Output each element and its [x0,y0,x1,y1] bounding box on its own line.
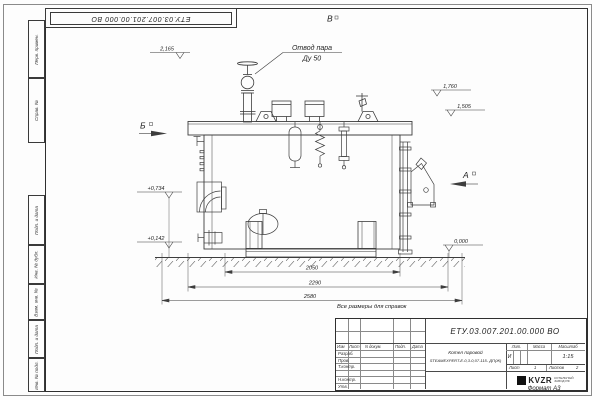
product-name-cell: Котел паровой STEAMEXPERT-E-0,3-0,07-115… [425,343,506,371]
row-razrab: Разраб. [338,351,354,356]
engineering-drawing-sheet: { "page": { "top_stamp": "ЕТУ.03.007.201… [0,0,600,400]
col-list: Лист [349,344,360,349]
divider [336,357,425,358]
elevation-marks: 2,165 1,760 1,505 +0,734 +0,142 0,000 [137,47,485,258]
row-tkontr: Т.контр. [338,364,355,369]
scale-value: 1:15 [551,350,585,364]
kvzr-logo-icon [517,376,526,385]
divider [410,319,411,389]
list-value: 1 [534,365,536,370]
col-podp: Подп. [395,344,406,349]
row-utv: Утв. [338,384,348,389]
steam-outlet-stack [238,62,258,122]
dim-2050: 2050 [305,266,319,272]
divider [393,319,394,389]
elevation-0142: +0,142 [148,236,165,242]
masshtab-label: Масштаб [551,343,585,350]
callout-du50: Ду 50 [302,56,321,63]
top-hatch-boxes [272,101,324,122]
kvzr-sub2: ЗАВОД РФ [554,380,573,383]
supports-skid [246,222,376,258]
dim-2290: 2290 [308,281,322,287]
elevation-0000: 0,000 [454,239,469,245]
row-nkontr: Н.контр. [338,377,356,382]
kvzr-logo-text: KVZR [528,376,552,385]
view-labels: В Б А [139,14,478,187]
lifting-lugs [256,93,378,122]
row-prov: Пров. [338,358,349,363]
product-name: Котел паровой [448,350,482,357]
title-block: ЕТУ.03.007.201.00.000 ВО Котел паровой S… [335,318,587,391]
kvzr-logo-subtext: КОТЕЛЬНЫЙ ЗАВОД РФ [554,377,573,384]
divider [513,350,514,364]
front-fittings [194,137,279,246]
dim-2580: 2580 [303,294,317,300]
callout-steam-outlet: Отвод пара [292,44,332,52]
fittings-instruments [289,122,349,169]
divider [360,319,361,389]
elevation-1505: 1,505 [457,104,472,110]
lit-value: И [506,350,513,364]
divider [520,350,521,364]
format-label: Формат А3 [500,386,588,392]
steam-outlet-callout: Отвод пара Ду 50 [255,44,342,74]
col-ndoc: N докум. [365,344,382,349]
lit-label: Лит. [506,343,527,350]
divider [336,383,425,384]
elevation-1760: 1,760 [443,84,458,90]
col-izm: Изм [337,344,345,349]
elevation-2165: 2,165 [159,47,175,53]
rear-column-bracket [399,142,436,254]
listov-value: 2 [576,365,578,370]
view-label-a: А [462,170,469,180]
elevation-0734: +0,734 [148,186,165,192]
reference-note: Все размеры для справок [337,304,406,310]
col-data: Дата [412,344,423,349]
document-number: ЕТУ.03.007.201.00.000 ВО [425,319,585,343]
listov-label: Листов [549,365,564,370]
divider [336,331,425,332]
divider [336,370,425,371]
list-label: Лист [509,365,520,370]
view-label-v: В [327,14,333,24]
product-model: STEAMEXPERT-E-0,3-0,07-115- ДП(Ж) [430,358,502,364]
massa-label: Масса [527,343,551,350]
view-label-b: Б [140,121,146,131]
divider [546,364,547,371]
